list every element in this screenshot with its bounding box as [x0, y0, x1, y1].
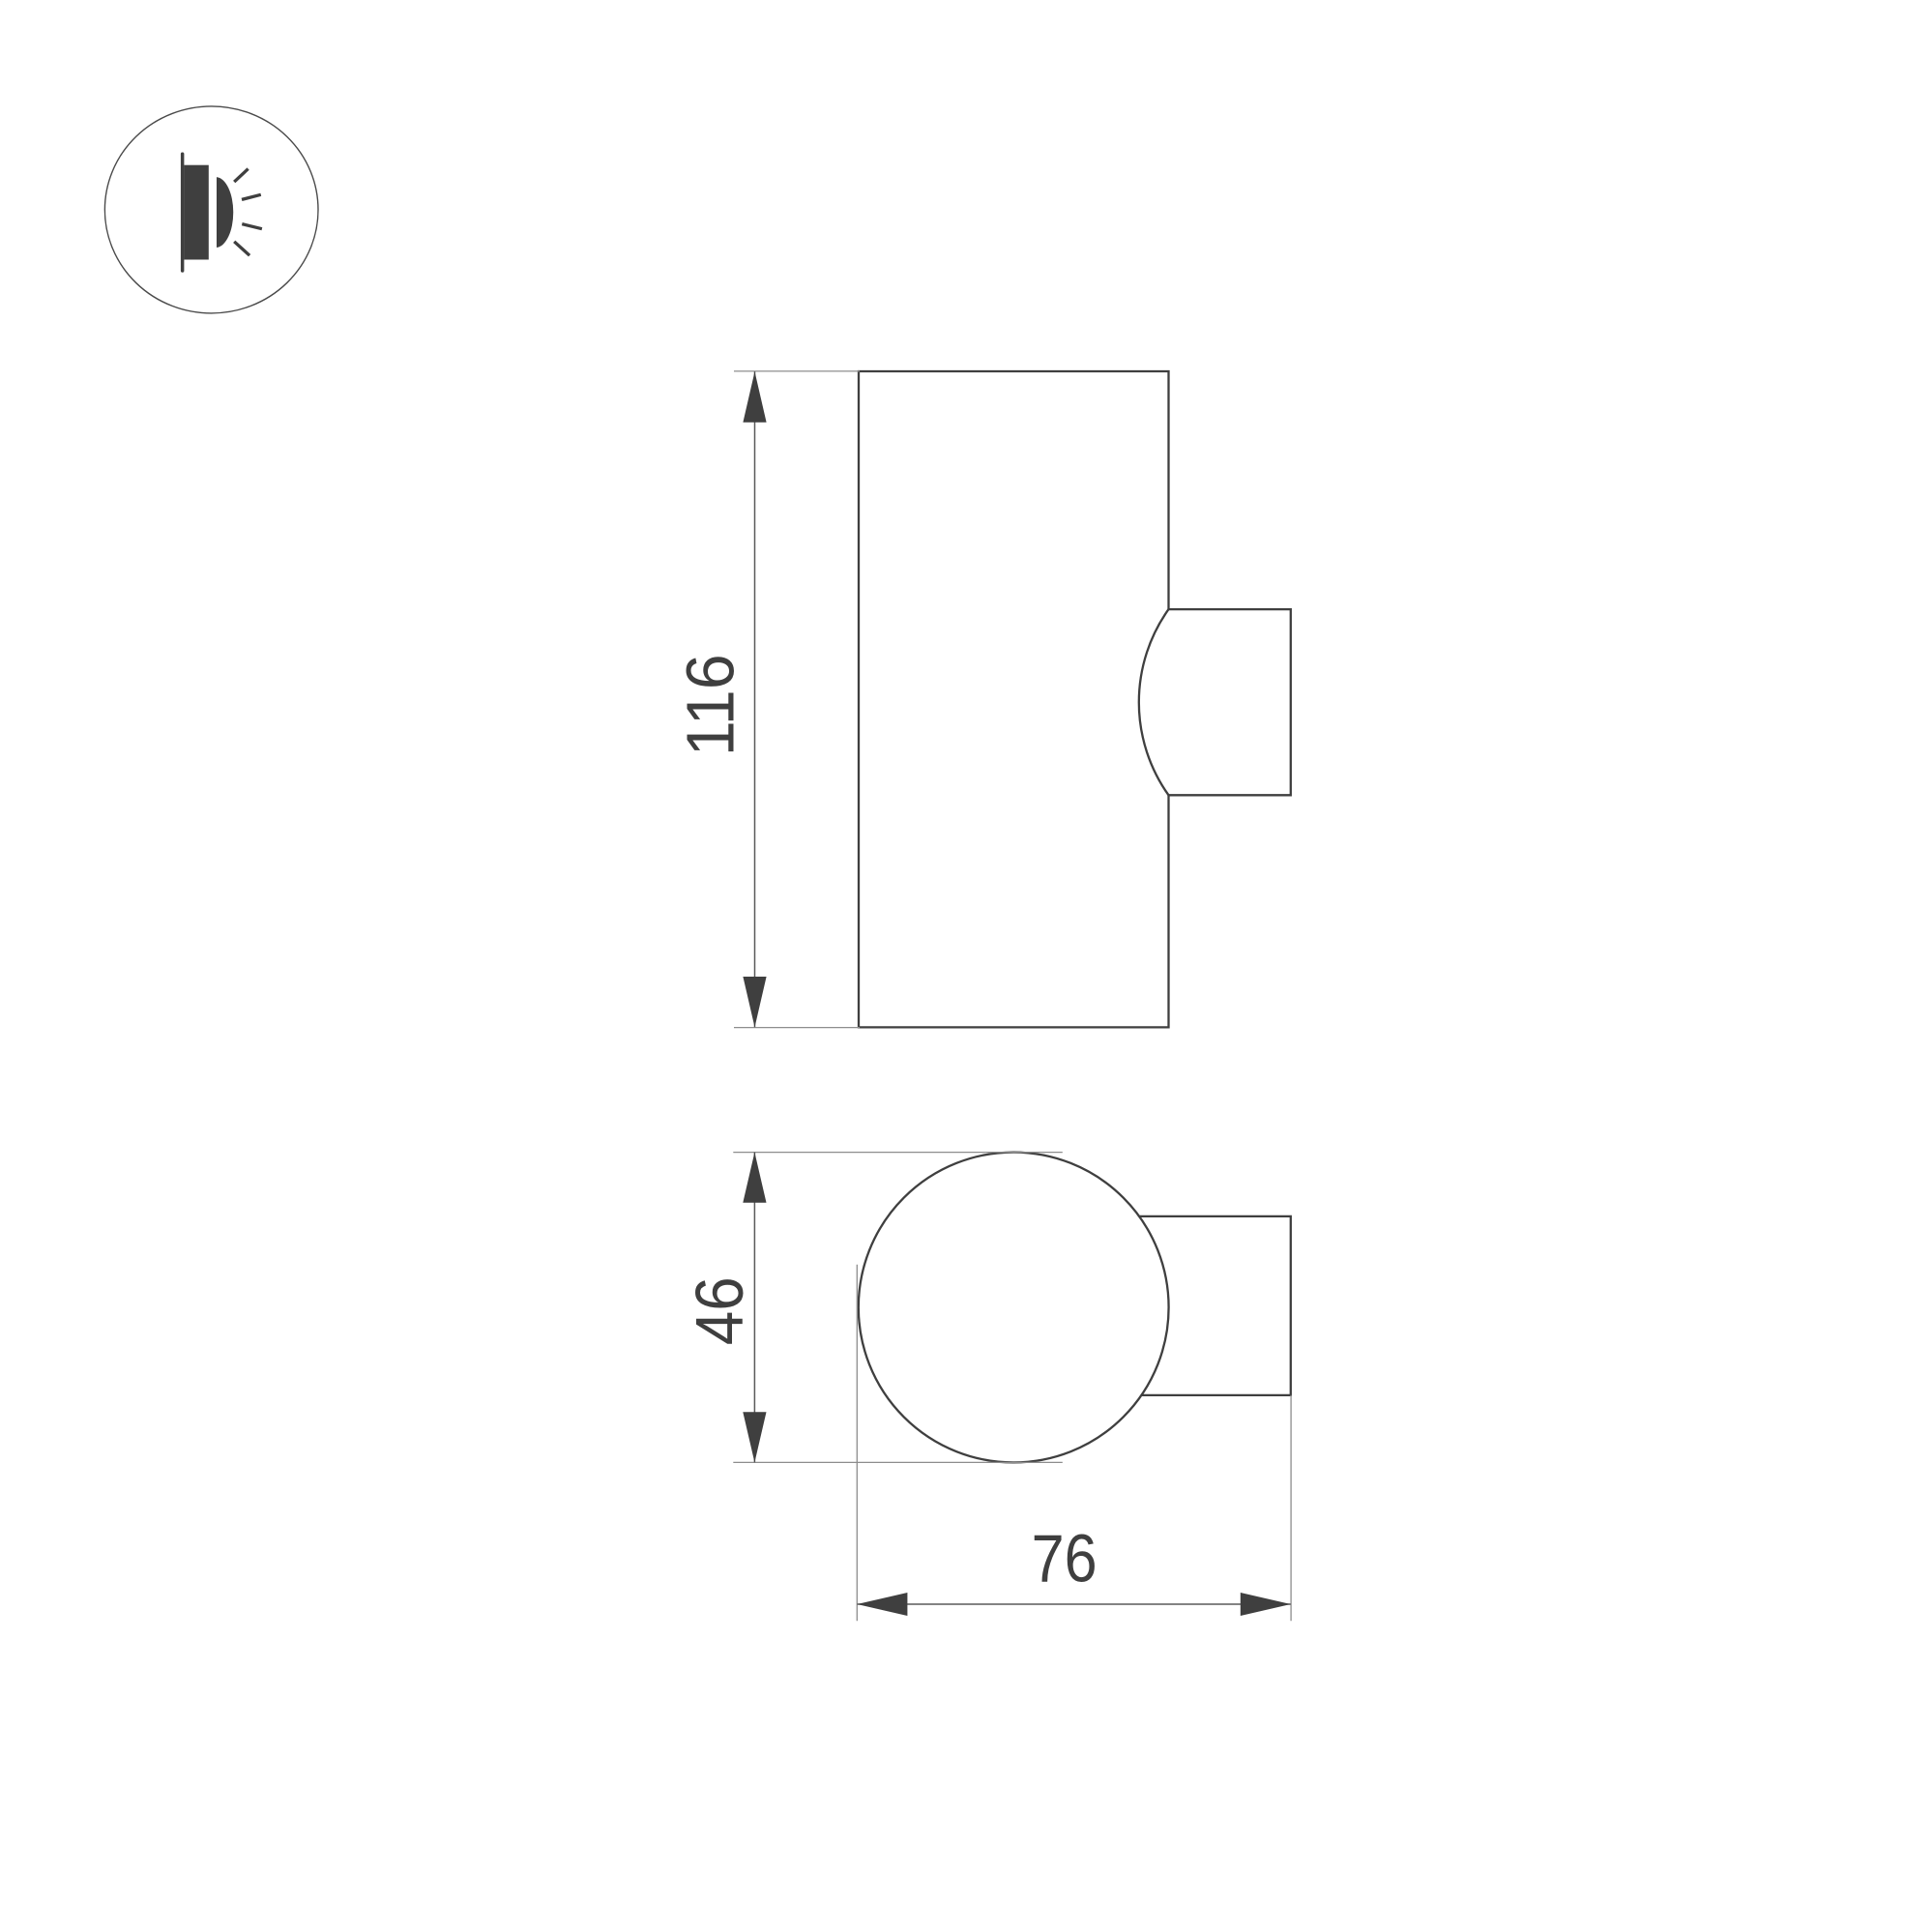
- svg-text:46: 46: [682, 1276, 757, 1345]
- svg-text:116: 116: [672, 654, 747, 756]
- svg-text:76: 76: [1032, 1520, 1098, 1595]
